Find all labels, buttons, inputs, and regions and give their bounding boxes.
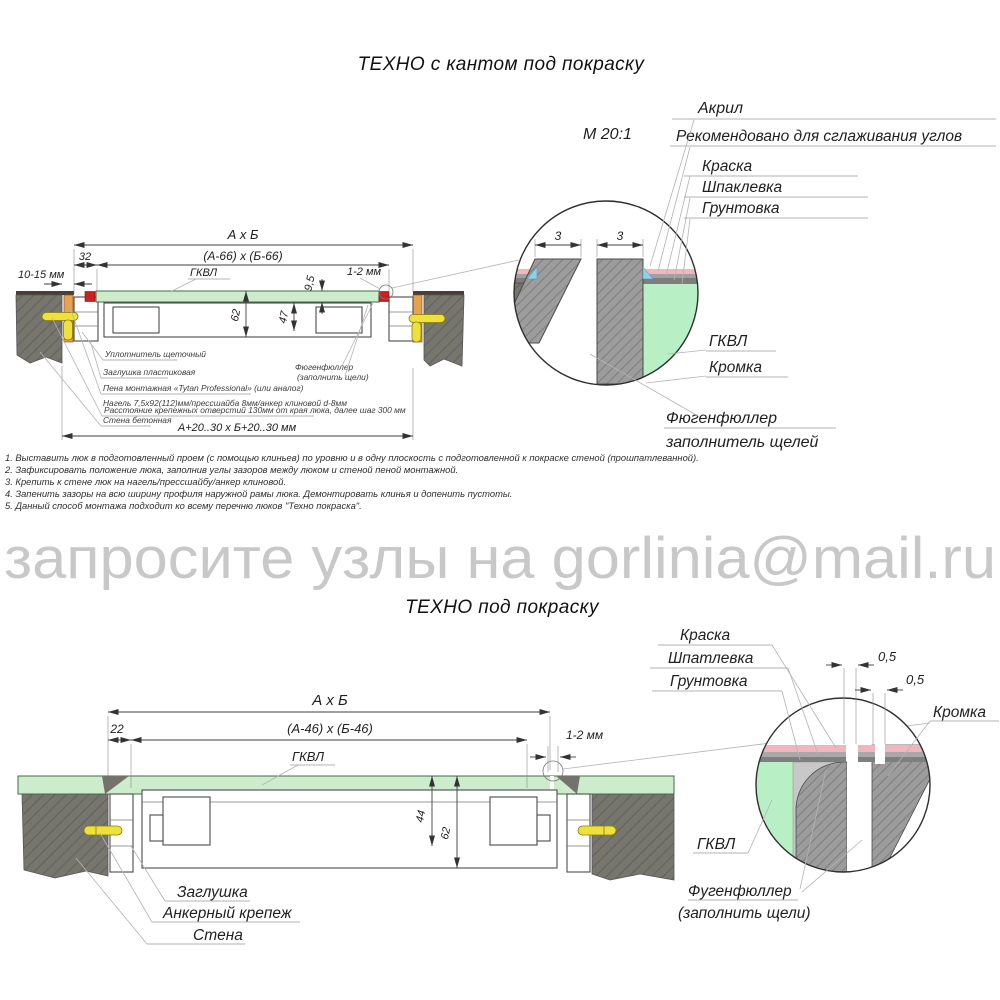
watermark-text: запросите узлы на gorlinia@mail.ru (4, 526, 996, 591)
label-anchor-bottom: Анкерный крепеж (162, 905, 293, 922)
dim-overall-top: А х Б (227, 227, 259, 242)
label-paint-top: Краска (702, 158, 752, 175)
bottom-detail-view: 0,5 0,5 Краска Шпатлевка Грунтовка Кромк… (650, 627, 999, 922)
concrete-wall-left (16, 295, 62, 363)
label-filler-top-line1: Фюгенфюллер (666, 410, 777, 427)
dim-05-first: 0,5 (878, 649, 897, 664)
dim-panel-thickness: 9,5 (303, 274, 318, 292)
label-filler-bottom-line2: (заполнить щели) (678, 905, 811, 922)
dim-05-second: 0,5 (906, 672, 925, 687)
callout-wall: Стена бетонная (103, 415, 172, 425)
label-gkvl-detail-top: ГКВЛ (709, 333, 748, 350)
technical-drawing-svg: ТЕХНО с кантом под покраску ТЕХНО под по… (0, 0, 1000, 1000)
dim-overall-bottom: А х Б (311, 692, 348, 709)
anchor-bolt-left-bottom (84, 826, 122, 835)
label-primer-bottom: Грунтовка (670, 673, 748, 690)
callout-foam: Пена монтажная «Tytan Professional» (или… (103, 383, 304, 393)
label-putty-top: Шпаклевка (702, 179, 783, 196)
note-2: 2. Зафиксировать положение люка, заполни… (4, 464, 458, 475)
detail-gkvl-green (643, 284, 705, 379)
wall-left-bottom (22, 794, 108, 878)
dim-62-top: 62 (229, 308, 243, 322)
gasket-left (85, 292, 95, 302)
wall-finish-strip-left (16, 291, 74, 295)
note-3: 3. Крепить к стене люк на нагель/прессша… (5, 476, 286, 487)
detail-dim-3-right: 3 (617, 229, 624, 243)
top-section-drawing: А х Б (А-66) х (Б-66) 32 10-15 мм 9,5 1-… (16, 227, 519, 440)
gkvl-panel (96, 291, 379, 302)
callout-plug: Заглушка пластиковая (103, 367, 196, 377)
dim-opening: А+20..30 х Б+20..30 мм (177, 422, 297, 434)
callout-filler-line1: Фюгенфюллер (295, 362, 353, 372)
label-acryl-note: Рекомендовано для сглаживания углов (676, 128, 962, 145)
concrete-wall-right (424, 295, 464, 366)
label-gkvl-bottom: ГКВЛ (292, 749, 324, 764)
label-primer-top: Грунтовка (702, 200, 780, 217)
dim-wall-gap: 10-15 мм (18, 269, 65, 281)
top-detail-view: 3 3 М 20:1 Акрил Рекомендовано для сглаж… (496, 100, 996, 451)
note-1: 1. Выставить люк в подготовленный проем … (5, 452, 699, 463)
note-5: 5. Данный способ монтажа подходит ко все… (5, 500, 362, 511)
wall-finish-strip-right (413, 291, 464, 295)
dim-edge-gap-top: 1-2 мм (347, 266, 381, 278)
label-edge-top: Кромка (709, 359, 762, 376)
detail-scale-label: М 20:1 (583, 126, 632, 143)
dim-32: 32 (79, 251, 91, 263)
dim-44: 44 (414, 809, 428, 823)
label-filler-top-line2: заполнитель щелей (665, 434, 819, 451)
detail-edge-block-right (597, 259, 643, 384)
dim-62-bottom: 62 (439, 826, 453, 840)
label-paint-bottom: Краска (680, 627, 730, 644)
detail-gkvl-green-bottom (756, 762, 793, 875)
detail-paint-layer-bottom (756, 745, 846, 752)
installation-notes: 1. Выставить люк в подготовленный проем … (4, 452, 699, 511)
anchor-bolt-right (409, 315, 445, 323)
detail-primer-layer-bottom (756, 757, 846, 762)
detail-dim-3-left: 3 (555, 229, 562, 243)
title-bottom: ТЕХНО под покраску (405, 597, 600, 618)
anchor-bolt-right-bottom (578, 826, 616, 835)
label-gkvl-top: ГКВЛ (190, 267, 218, 279)
dim-edge-gap-bottom: 1-2 мм (566, 728, 603, 742)
label-wall-bottom: Стена (193, 927, 243, 944)
note-4: 4. Запенить зазоры на всю ширину профиля… (5, 488, 512, 499)
technical-drawing-page: ТЕХНО с кантом под покраску ТЕХНО под по… (0, 0, 1000, 1000)
label-filler-bottom-line1: Фугенфюллер (688, 883, 792, 900)
dim-22: 22 (109, 722, 124, 736)
callout-filler-line2: (заполнить щели) (297, 372, 369, 382)
label-edge-bottom: Кромка (933, 704, 986, 721)
dim-inner-top: (А-66) х (Б-66) (203, 249, 282, 263)
label-acryl: Акрил (697, 100, 743, 117)
dim-inner-bottom: (А-46) х (Б-46) (287, 721, 373, 736)
callout-spacing: Расстояние крепежных отверстий 130мм от … (104, 405, 406, 415)
detail-leader-top (392, 260, 519, 288)
callout-seal: Уплотнитель щеточный (104, 349, 206, 359)
label-plug-bottom: Заглушка (177, 884, 248, 901)
title-top: ТЕХНО с кантом под покраску (358, 54, 646, 75)
label-putty-bottom: Шпатлевка (668, 650, 754, 667)
detail-putty-layer-bottom (756, 752, 846, 757)
label-gkvl-detail-bottom: ГКВЛ (697, 836, 736, 853)
wall-right-bottom (592, 794, 674, 880)
